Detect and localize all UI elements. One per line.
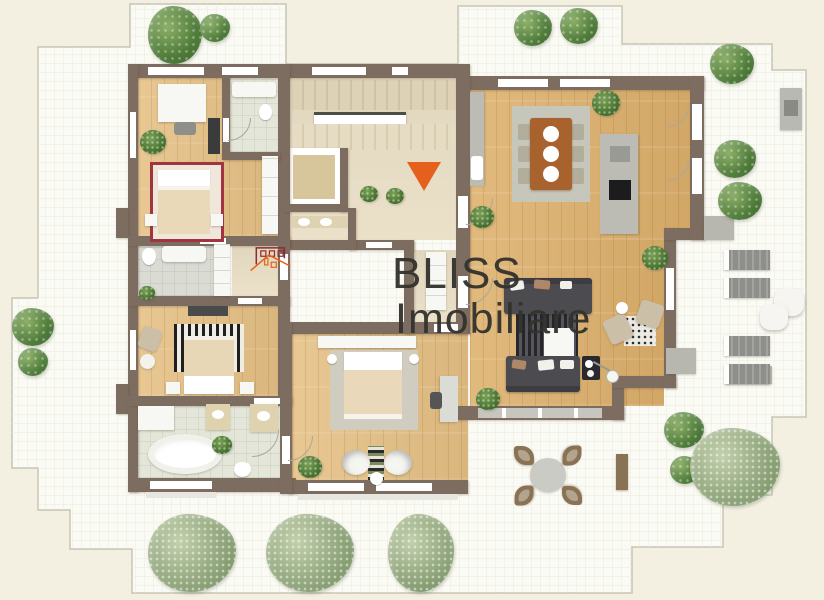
entry-door-gap bbox=[392, 67, 408, 75]
kitchen-sink bbox=[471, 156, 483, 180]
bed3-blanket bbox=[344, 370, 402, 419]
outdoor-pouf bbox=[760, 304, 788, 330]
dining-chair bbox=[572, 124, 584, 140]
entrance-arrow bbox=[407, 162, 441, 191]
toilet bbox=[259, 104, 272, 120]
potted-plant bbox=[642, 246, 668, 270]
stair-treads-lower bbox=[292, 124, 456, 150]
door-mullion bbox=[502, 408, 506, 418]
potted-plant bbox=[212, 436, 232, 454]
sun-lounger bbox=[724, 364, 770, 384]
mug bbox=[585, 360, 593, 368]
nightstand bbox=[166, 382, 180, 394]
toilet bbox=[234, 462, 251, 477]
sun-lounger bbox=[724, 278, 770, 298]
window-sill bbox=[298, 494, 458, 500]
dining-chair bbox=[572, 168, 584, 184]
wall-top-stairwell bbox=[284, 64, 464, 78]
terrace-step-slab bbox=[704, 216, 734, 240]
bathtub bbox=[162, 246, 206, 262]
pouf bbox=[140, 354, 155, 369]
stove bbox=[609, 180, 631, 200]
sink bbox=[298, 218, 310, 226]
oval-bathtub bbox=[148, 434, 222, 474]
sun-lounger bbox=[724, 250, 770, 270]
sink bbox=[257, 411, 270, 421]
plate bbox=[543, 126, 559, 142]
dining-chair bbox=[518, 168, 530, 184]
round-chair bbox=[342, 450, 370, 475]
vanity bbox=[138, 406, 174, 430]
toilet bbox=[142, 248, 156, 265]
sink bbox=[212, 410, 224, 419]
wall-elevator-right bbox=[340, 148, 348, 212]
grill-grate bbox=[784, 100, 798, 116]
window bbox=[150, 481, 212, 489]
bed1-pillows bbox=[158, 170, 210, 186]
wall-left-mid bbox=[128, 240, 138, 406]
bliss-house-logo bbox=[230, 244, 380, 348]
wall-pillar bbox=[116, 208, 128, 238]
window bbox=[130, 330, 136, 370]
window bbox=[498, 79, 548, 87]
island-sink bbox=[610, 146, 630, 162]
mug bbox=[587, 370, 594, 377]
nightstand bbox=[211, 214, 223, 226]
desk bbox=[158, 84, 206, 122]
floor-plan-canvas: BLISS Imobiliare bbox=[0, 0, 824, 600]
door-mullion bbox=[538, 408, 542, 418]
bed3-pillows bbox=[344, 352, 402, 370]
wall-elevator-bottom bbox=[284, 204, 346, 212]
window bbox=[376, 483, 432, 491]
french-door bbox=[692, 104, 702, 140]
bathtub bbox=[232, 82, 276, 97]
window bbox=[222, 67, 258, 75]
door-mullion bbox=[574, 408, 578, 418]
potted-plant bbox=[140, 130, 166, 154]
nightstand bbox=[145, 214, 157, 226]
wardrobe bbox=[262, 156, 278, 234]
watermark-brand: BLISS bbox=[392, 252, 522, 296]
round-garden-table bbox=[530, 458, 566, 492]
sofa-pillow bbox=[560, 360, 574, 369]
potted-plant bbox=[360, 186, 378, 202]
dining-chair bbox=[572, 146, 584, 162]
wall-ensuite-left bbox=[222, 76, 230, 158]
potted-plant bbox=[592, 90, 620, 116]
plate bbox=[543, 166, 559, 182]
window-sill bbox=[146, 492, 216, 498]
tv-unit bbox=[208, 118, 220, 154]
bedside-lamp bbox=[327, 354, 337, 364]
window bbox=[308, 483, 364, 491]
potted-plant bbox=[476, 388, 500, 410]
potted-plant bbox=[298, 456, 322, 478]
sink bbox=[320, 218, 332, 226]
window bbox=[312, 67, 366, 75]
wall-divider-bedroom1-stairs bbox=[278, 64, 290, 212]
sofa-pillow bbox=[534, 279, 551, 289]
round-chair bbox=[384, 450, 412, 475]
dining-chair bbox=[518, 124, 530, 140]
french-door bbox=[692, 158, 702, 194]
window bbox=[666, 268, 674, 310]
sofa-pillow bbox=[538, 359, 555, 371]
desk bbox=[440, 376, 458, 422]
potted-plant bbox=[470, 206, 494, 228]
potted-plant bbox=[139, 286, 155, 300]
watermark-brand-sub: Imobiliare bbox=[395, 298, 591, 341]
bedside-lamp bbox=[409, 354, 419, 364]
dining-chair bbox=[518, 146, 530, 162]
sun-lounger bbox=[724, 336, 770, 356]
tv-sideboard bbox=[188, 306, 228, 316]
small-round-table bbox=[370, 472, 383, 485]
floor-lamp-head bbox=[606, 370, 619, 383]
window bbox=[560, 79, 610, 87]
stair-treads-upper bbox=[292, 80, 456, 110]
elevator-cab bbox=[293, 155, 335, 199]
window bbox=[148, 67, 204, 75]
potted-plant bbox=[386, 188, 404, 204]
sofa-pillow bbox=[560, 281, 572, 289]
terrace-step-slab bbox=[666, 348, 696, 374]
window bbox=[130, 112, 136, 158]
garden-bench bbox=[616, 454, 628, 490]
sofa-pillow bbox=[511, 359, 526, 370]
bed2-pillows bbox=[184, 376, 234, 394]
plate bbox=[543, 146, 559, 162]
nightstand bbox=[240, 382, 254, 394]
desk-chair bbox=[174, 122, 196, 135]
bed1-blanket bbox=[158, 186, 210, 234]
side-table-round bbox=[616, 302, 628, 314]
wall-pillar bbox=[116, 384, 128, 414]
wardrobe bbox=[214, 244, 230, 296]
bed2-blanket bbox=[184, 336, 234, 380]
desk-chair bbox=[430, 392, 442, 409]
